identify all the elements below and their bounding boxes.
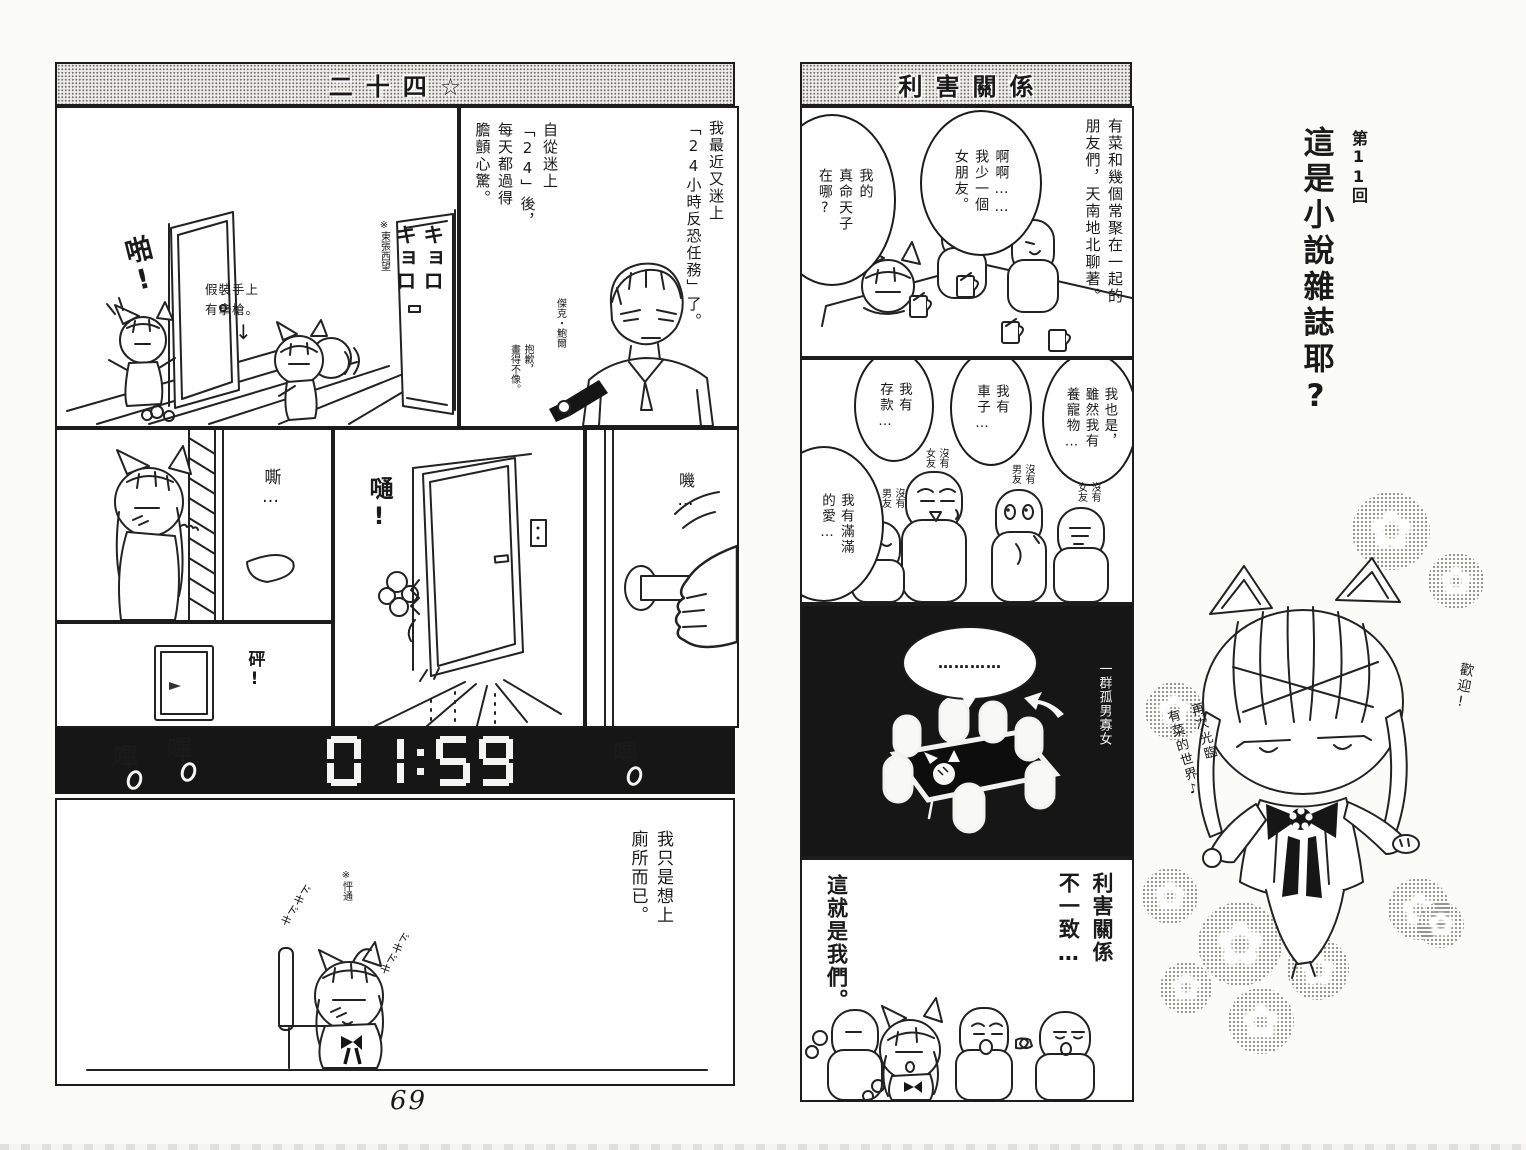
clock-display <box>327 736 513 786</box>
panel-clock: 嗶 嗶 嗶 <box>55 728 735 794</box>
sfx-beep-2: 嗶 <box>167 730 192 766</box>
right-page-title: 利害關係 <box>886 67 1047 102</box>
label-jack-bauer: 傑克・鮑爾 <box>553 298 567 348</box>
page-number: 69 <box>390 1086 427 1116</box>
panel-silence: ………… 一群孤男寡女 <box>800 604 1134 858</box>
bubble-text-girlfriend: 啊啊…… 我少一個 女朋友。 <box>951 149 1012 217</box>
bubble-text-destiny: 我的 真命天子 在哪? <box>800 168 875 232</box>
hand-on-handle-drawing <box>587 430 737 726</box>
chapter-number: 第11回 <box>1346 130 1370 204</box>
panel-door-slam: 嗵! <box>333 428 585 728</box>
bubble-text-silence: ………… <box>938 654 1002 672</box>
panel-conclusion: 利害關係 不一致… 這就是我們。 <box>800 858 1134 1102</box>
bubble-tail-icon <box>960 694 978 708</box>
tag-no-boyfriend-mid: 沒有 男友 <box>1008 464 1035 484</box>
text-interests-differ: 利害關係 不一致… <box>1051 872 1118 967</box>
narration-24: 我最近又迷上 「24小時反恐任務」了。 <box>682 120 727 406</box>
panel-hallway: 啪! 假裝手上 有拿槍。 ↓ ※東張西望 キョロ キョロ <box>55 106 459 428</box>
speech-bubble-silence: ………… <box>902 626 1038 700</box>
bubble-text-pets: 我也是， 雖然我有 養寵物… <box>1062 387 1119 452</box>
sfx-bang: 砰! <box>241 650 267 691</box>
sfx-creak: 嘰… <box>673 472 697 511</box>
scan-edge-noise <box>0 1144 1526 1150</box>
small-door-drawing <box>57 624 331 726</box>
label-sorry: 抱歉， 畫得不像。 <box>507 344 534 394</box>
sfx-hiss: 嘶… <box>257 468 283 509</box>
note-looking-around: ※東張西望 <box>377 220 391 271</box>
left-page-title-banner: 二十四☆ <box>55 62 735 106</box>
panel-what-we-have: 我也是， 雖然我有 養寵物… 我有 車子… 我有 存款… 我有滿滿 的愛… 沒有… <box>800 358 1134 604</box>
panel-jack: 我最近又迷上 「24小時反恐任務」了。 自從迷上 「24」後， 每天都過得 膽顫… <box>459 106 739 428</box>
speech-bubble-pets: 我也是， 雖然我有 養寵物… <box>1042 358 1134 486</box>
narration-friends: 有菜和幾個常聚在一起的 朋友們，天南地北聊著。 <box>1081 118 1126 354</box>
panel-door-handle: 嘰… <box>585 428 739 728</box>
speech-bubble-girlfriend: 啊啊…… 我少一個 女朋友。 <box>920 110 1042 256</box>
door-slam-drawing <box>335 430 583 726</box>
panel-small-door: 砰! <box>55 622 333 728</box>
note-thump: ※怦通 <box>339 870 353 901</box>
flower-icon: ✿ <box>1228 988 1294 1054</box>
right-page-title-banner: 利害關係 <box>800 62 1132 106</box>
panel-peeking: 嘶… <box>55 428 333 622</box>
bubble-text-savings: 我有 存款… <box>875 382 913 431</box>
tag-no-girlfriend-right: 沒有 女友 <box>1074 482 1101 502</box>
text-that-is-us: 這就是我們。 <box>820 874 852 1012</box>
sfx-thud: 嗵! <box>361 476 397 532</box>
narration-toilet: 我只是想上 廁所而已。 <box>624 830 675 1020</box>
girl-peeking-drawing <box>57 430 331 620</box>
label-lonely-group: 一群孤男寡女 <box>1094 662 1114 746</box>
note-pretend-gun: 假裝手上 有拿槍。 <box>205 280 259 320</box>
tag-no-girlfriend-center: 沒有 女友 <box>922 448 949 468</box>
sfx-beep-3: 嗶 <box>613 734 638 770</box>
bubble-text-car: 我有 車子… <box>972 384 1010 433</box>
bubble-text-love: 我有滿滿 的愛… <box>800 493 855 555</box>
left-page-title: 二十四☆ <box>316 67 475 102</box>
sfx-beep-1: 嗶 <box>113 738 138 774</box>
down-arrow-icon: ↓ <box>235 320 252 344</box>
manga-spread: 二十四☆ <box>0 0 1526 1150</box>
sfx-kyoro-kyoro: キョロ キョロ <box>391 224 446 293</box>
panel-toilet: 我只是想上 廁所而已。 ※怦通 ドキドキ ドキドキ <box>55 798 735 1086</box>
tag-no-boyfriend-left: 沒有 男友 <box>878 488 905 508</box>
panel-friends-table: 啊啊…… 我少一個 女朋友。 我的 真命天子 在哪? 有菜和幾個常聚在一起的 朋… <box>800 106 1134 358</box>
sidebar-title: 這是小說雜誌耶? <box>1292 126 1339 419</box>
